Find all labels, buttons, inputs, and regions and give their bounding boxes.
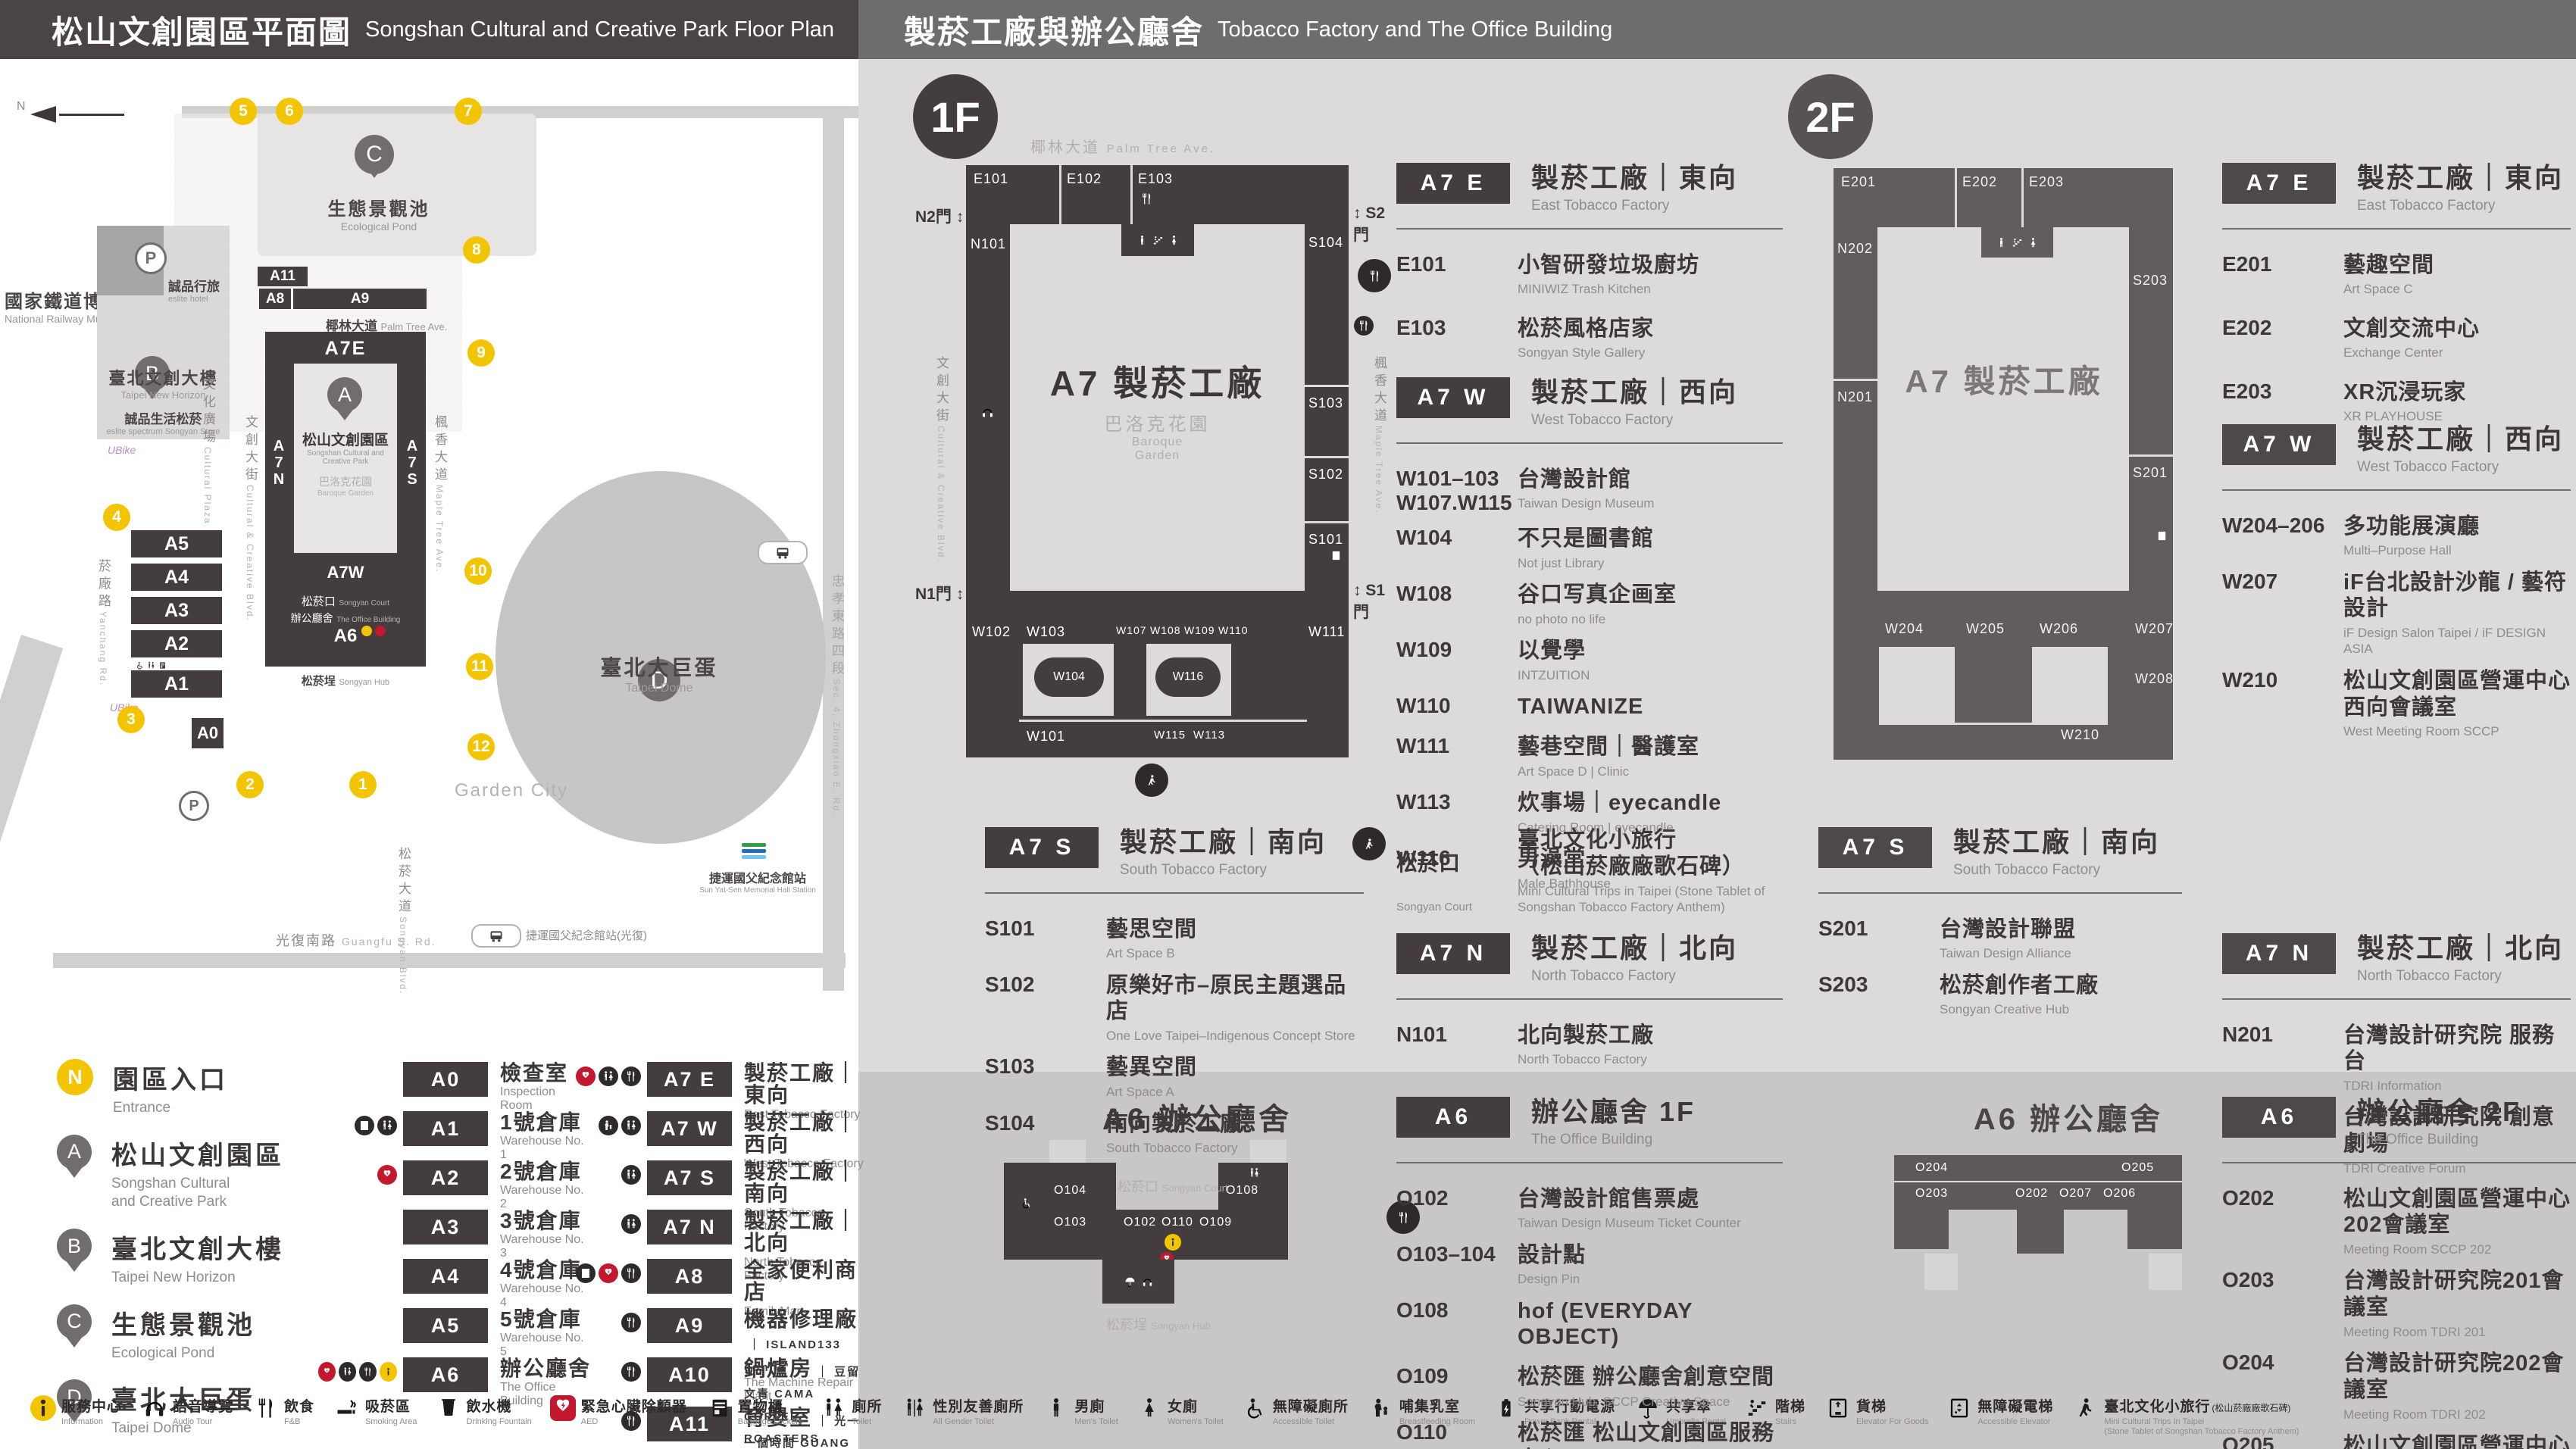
amenity-item: 貨梯Elevator For Goods bbox=[1825, 1395, 1928, 1427]
list-item: E203 XR沉浸玩家XR PLAYHOUSE bbox=[2222, 379, 2571, 425]
place-en: Songshan Cultural and Creative Park bbox=[111, 1175, 284, 1212]
list-item: W108 谷口写真企画室no photo no life bbox=[1396, 582, 1783, 627]
room-name-zh: 以覺學 bbox=[1518, 638, 1590, 664]
building-icons bbox=[562, 1062, 641, 1086]
room-name-en: Art Space C bbox=[2343, 281, 2434, 297]
office-en: The Office Building bbox=[336, 616, 400, 624]
entrance-legend-icon: N bbox=[57, 1059, 93, 1095]
section-title-zh: 製菸工廠｜西向 bbox=[2357, 424, 2564, 454]
pond-pin: C bbox=[355, 135, 394, 174]
amenity-icon bbox=[821, 1395, 846, 1425]
room-name-en: Meeting Room TDRI 202 bbox=[2343, 1407, 2576, 1422]
amenity-zh: 無障礙電梯 bbox=[1977, 1399, 2053, 1415]
entrance-12-num: 12 bbox=[472, 738, 489, 756]
room-w116: W116 bbox=[1173, 670, 1204, 684]
room-o104: O104 bbox=[1054, 1184, 1086, 1198]
f1-road-right-en: Maple Tree Ave. bbox=[1374, 426, 1384, 514]
amenity-zh: 服務中心 bbox=[61, 1399, 122, 1415]
building-icons bbox=[318, 1259, 397, 1263]
room-name-zh: 松菸匯 松山文創園區服務中心 bbox=[1518, 1420, 1783, 1449]
section-badge: A7 W bbox=[1396, 377, 1510, 418]
section-badge: A6 bbox=[2222, 1097, 2336, 1138]
list-item: O109 松菸匯 辦公廳舍創意空間Songyan Hub, SCCP Creat… bbox=[1396, 1364, 1783, 1410]
plaza-en: Cultural Plaza bbox=[202, 447, 213, 525]
f2-west-wing: W204 W205 W206 W207 W208 W210 bbox=[1834, 612, 2173, 760]
place-pin-icon: B bbox=[57, 1229, 92, 1263]
room-o110: O110 bbox=[1161, 1216, 1193, 1229]
north-arrow-icon: N bbox=[30, 106, 124, 123]
building-a2: A2 bbox=[131, 630, 222, 657]
baroque-en: Baroque Garden bbox=[265, 489, 426, 498]
park-zh: 松山文創園區 bbox=[265, 429, 426, 449]
room-name-en: Art Space D | Clinic bbox=[1518, 764, 1699, 779]
f1-west-wing: W102 W103 W107 W108 W109 W110 W111 W104 … bbox=[966, 614, 1349, 757]
room-w110: W110 bbox=[1218, 624, 1249, 636]
room-n101: N101 bbox=[971, 236, 1006, 252]
section-title-en: North Tobacco Factory bbox=[1531, 968, 1738, 985]
audio-icon bbox=[1142, 1276, 1153, 1288]
amenity-en: Accessible Elevator bbox=[1977, 1417, 2055, 1427]
list-item: E202 文創交流中心Exchange Center bbox=[2222, 316, 2571, 361]
gate-n1: N1門 ↕ bbox=[915, 582, 964, 604]
bus-stop-icon-2 bbox=[758, 541, 808, 564]
f2-north-wing: N202 N201 bbox=[1834, 227, 1877, 591]
amenity-zh: 飲水機 bbox=[467, 1399, 512, 1415]
place-pin-letter: A bbox=[67, 1140, 81, 1163]
f1-garden-en: Baroque Garden bbox=[1015, 436, 1299, 463]
room-w206: W206 bbox=[2040, 621, 2078, 637]
room-name-en: Multi–Purpose Hall bbox=[2343, 542, 2480, 558]
list-item: O204 台灣設計研究院202會議室Meeting Room TDRI 202 bbox=[2222, 1351, 2576, 1422]
room-code: E101 bbox=[1396, 252, 1518, 298]
maple-ave-label: 楓香大道Maple Tree Ave. bbox=[430, 415, 449, 573]
eslite-hotel-label: 誠品行旅 eslite hotel bbox=[168, 276, 220, 304]
room-o204: O204 bbox=[1915, 1161, 1948, 1175]
amenity-item: 置物櫃Baggage Lockers bbox=[707, 1395, 803, 1427]
legend-building-row: A6 辦公廳舍The Office Building bbox=[318, 1357, 591, 1397]
room-name-en: Meeting Room TDRI 201 bbox=[2343, 1324, 2576, 1340]
a6-court-zh: 松菸口 bbox=[1118, 1179, 1158, 1194]
section-badge: A6 bbox=[1396, 1097, 1510, 1138]
a1-label: A1 bbox=[164, 673, 189, 695]
amenity-en: AED bbox=[581, 1417, 689, 1427]
room-name-zh: 谷口写真企画室 bbox=[1518, 582, 1677, 608]
room-name-en: no photo no life bbox=[1518, 611, 1677, 627]
guangfu-zh: 光復南路 bbox=[276, 933, 336, 948]
a6-2f-main-bar: O204 O205 O203 O202 O207 O206 bbox=[1894, 1155, 2182, 1210]
building-badge: A6 bbox=[403, 1357, 488, 1392]
room-e101: E101 bbox=[974, 171, 1008, 187]
women-icon bbox=[2027, 237, 2039, 248]
park-map: N 國家鐵道博物館 National Railway Museum C 生態景觀… bbox=[0, 59, 858, 1053]
room-name-zh: 設計點 bbox=[1518, 1242, 1586, 1269]
room-name-zh: iF台北設計沙龍 / 藝符設計 bbox=[2343, 570, 2571, 623]
a6-2f-right-wing bbox=[2127, 1210, 2182, 1249]
amenity-icon bbox=[1242, 1395, 1268, 1425]
info-icon bbox=[1165, 1234, 1181, 1251]
a6-2f-title: A6 辦公廳舍 bbox=[1932, 1095, 2205, 1138]
a6-letter: A6 bbox=[334, 626, 358, 646]
section-a7e-1f: A7 E 製菸工廠｜東向East Tobacco Factory E101 小智… bbox=[1396, 163, 1783, 379]
cc-blvd-label: 文創大街Cultural & Creative Blvd. bbox=[241, 415, 260, 622]
a9-label: A9 bbox=[351, 291, 369, 308]
f2-court-right bbox=[2032, 647, 2108, 723]
room-w101: W101 bbox=[1027, 729, 1065, 745]
room-code: O110 bbox=[1396, 1420, 1518, 1449]
room-code: O108 bbox=[1396, 1298, 1518, 1354]
zhongxiao-label: 忠孝東路四段Sec. 4, Zhongxiao E. Rd. bbox=[827, 574, 846, 816]
building-zh: 製菸工廠｜北向 bbox=[744, 1209, 858, 1254]
amenity-icon bbox=[334, 1395, 360, 1425]
room-name-en: Not just Library bbox=[1518, 555, 1654, 571]
legend-buildings-right: A7 E 製菸工廠｜東向East Tobacco Factory A7 W 製菸… bbox=[562, 1062, 865, 1449]
room-code: O102 bbox=[1396, 1186, 1518, 1232]
building-zh: 製菸工廠｜南向 bbox=[744, 1160, 858, 1205]
entrance-zh: 園區入口 bbox=[113, 1059, 228, 1096]
amenity-item: 無障礙電梯Accessible Elevator bbox=[1946, 1395, 2055, 1427]
pond-pin-letter: C bbox=[366, 142, 383, 167]
room-name-zh: 北向製菸工廠 bbox=[1518, 1023, 1654, 1049]
f1-mid-corridor bbox=[966, 591, 1349, 614]
parking-letter-2: P bbox=[189, 798, 199, 815]
entrance-7-num: 7 bbox=[464, 102, 473, 120]
room-code: W111 bbox=[1396, 734, 1518, 779]
entrance-6-num: 6 bbox=[285, 102, 294, 120]
room-code: W210 bbox=[2222, 668, 2343, 740]
a6-hub-en: Songyan Hub bbox=[1151, 1320, 1211, 1332]
section-title-en: The Office Building bbox=[2357, 1132, 2521, 1148]
room-code: S203 bbox=[1818, 973, 1940, 1018]
section-title-en: West Tobacco Factory bbox=[1531, 412, 1738, 429]
room-name-en: MINIWIZ Trash Kitchen bbox=[1518, 281, 1699, 297]
section-title-zh: 辦公廳舍 1F bbox=[1531, 1097, 1696, 1127]
section-title-en: South Tobacco Factory bbox=[1120, 862, 1327, 879]
room-name-en: North Tobacco Factory bbox=[1518, 1051, 1654, 1067]
room-name-zh: 台灣設計研究院201會議室 bbox=[2343, 1268, 2576, 1321]
room-name-zh: 藝異空間 bbox=[1106, 1054, 1197, 1081]
building-badge: A1 bbox=[403, 1111, 488, 1146]
gate-s2: ↕ S2門 bbox=[1353, 205, 1386, 245]
floor-plan-poster: 松山文創園區平面圖 Songshan Cultural and Creative… bbox=[0, 0, 2576, 1449]
amenity-en: Smoking Area bbox=[365, 1417, 417, 1427]
a6-1f-left-wing: O104 bbox=[1048, 1163, 1116, 1210]
toilet-icon bbox=[147, 661, 155, 670]
entrance-9: 9 bbox=[467, 339, 495, 367]
place-pin-icon: C bbox=[57, 1304, 92, 1339]
office-zh: 辦公廳舍 bbox=[291, 612, 333, 624]
list-item: S101 藝思空間Art Space B bbox=[985, 917, 1364, 962]
list-item: W109 以覺學INTZUITION bbox=[1396, 638, 1783, 683]
building-badge: A7 N bbox=[647, 1210, 732, 1244]
a6-2f-slot-left bbox=[1924, 1254, 1958, 1290]
building-badge: A3 bbox=[403, 1210, 488, 1244]
list-item: O202 松山文創園區營運中心202會議室Meeting Room SCCP 2… bbox=[2222, 1186, 2576, 1258]
amenity-item: 吸菸區Smoking Area bbox=[334, 1395, 417, 1427]
room-s201: S201 bbox=[2133, 465, 2168, 481]
baroque-zh: 巴洛克花園 bbox=[265, 474, 426, 489]
room-o109: O109 bbox=[1199, 1216, 1232, 1229]
court-en: Songyan Court bbox=[339, 599, 389, 607]
amenity-en: Information bbox=[61, 1417, 123, 1427]
section-badge: A7 N bbox=[1396, 933, 1510, 974]
section-a7w-2f: A7 W 製菸工廠｜西向West Tobacco Factory W204–20… bbox=[2222, 424, 2571, 751]
building-icons bbox=[562, 1259, 641, 1283]
room-code: O202 bbox=[2222, 1186, 2343, 1258]
a6-hub-label: 松菸埕 Songyan Hub bbox=[1106, 1314, 1211, 1334]
office-map-label: 辦公廳舍 The Office Building bbox=[265, 611, 426, 626]
building-badge: A4 bbox=[403, 1259, 488, 1294]
f1-center-title: A7 製菸工廠 bbox=[1015, 356, 1299, 406]
court-zh: 松菸口 bbox=[302, 595, 336, 608]
room-code: O103–104 bbox=[1396, 1242, 1518, 1288]
list-item: E101 小智研發垃圾廚坊MINIWIZ Trash Kitchen bbox=[1396, 252, 1783, 298]
section-a7n-1f: A7 N 製菸工廠｜北向North Tobacco Factory N101 北… bbox=[1396, 933, 1783, 1086]
building-a0: A0 bbox=[192, 718, 224, 748]
left-header: 松山文創園區平面圖 Songshan Cultural and Creative… bbox=[0, 0, 858, 59]
eslite-hotel-zh: 誠品行旅 bbox=[168, 276, 220, 295]
entrance-3-num: 3 bbox=[127, 710, 136, 729]
guangfu-en: Guangfu S. Rd. bbox=[342, 935, 436, 948]
right-header: 製菸工廠與辦公廳舍 Tobacco Factory and The Office… bbox=[858, 0, 2576, 59]
section-badge: A7 E bbox=[2222, 163, 2336, 204]
amenity-en: Drinking Fountain bbox=[467, 1417, 532, 1427]
parking-letter: P bbox=[145, 248, 157, 268]
room-e103: E103 bbox=[1138, 171, 1173, 187]
pond-zh: 生態景觀池 bbox=[318, 194, 439, 220]
room-w109: W109 bbox=[1184, 624, 1215, 636]
room-o108: O108 bbox=[1226, 1184, 1258, 1198]
list-item: S203 松菸創作者工廠Songyan Creative Hub bbox=[1818, 973, 2182, 1018]
parking-icon: P bbox=[135, 242, 167, 274]
building-badge: A9 bbox=[647, 1308, 732, 1343]
list-item: E201 藝趣空間Art Space C bbox=[2222, 252, 2571, 298]
tobacco-factory-complex: A7E A 7 N A 7 S A 松山文創園區 Songshan Cultur… bbox=[265, 332, 426, 667]
f1-road-left-zh: 文創大街 bbox=[934, 356, 949, 426]
a6-1f-right-wing: O108 bbox=[1218, 1163, 1288, 1210]
audio-icon bbox=[981, 406, 994, 419]
hub-zh: 松菸埕 bbox=[302, 675, 336, 688]
amenity-zh: 貨梯 bbox=[1856, 1399, 1887, 1415]
entrance-en: Entrance bbox=[113, 1099, 228, 1118]
bus-icon bbox=[775, 545, 790, 561]
building-icons bbox=[318, 1210, 397, 1214]
a6-2f-slot-right bbox=[2149, 1254, 2182, 1290]
amenity-zh: 置物櫃 bbox=[738, 1399, 783, 1415]
park-pin: A bbox=[327, 377, 362, 412]
room-w104: W104 bbox=[1053, 670, 1085, 684]
section-a6-2f: A6 辦公廳舍 2FThe Office Building O202 松山文創園… bbox=[2222, 1097, 2576, 1449]
room-code: N101 bbox=[1396, 1023, 1518, 1068]
entrance-badge: N bbox=[67, 1066, 83, 1089]
palm-ave-en: Palm Tree Ave. bbox=[380, 321, 447, 333]
a6-south-tab bbox=[330, 650, 361, 667]
walker-icon bbox=[1363, 838, 1376, 851]
garden-city-label: Garden City bbox=[455, 780, 568, 801]
zhongxiao-zh: 忠孝東路四段 bbox=[830, 574, 844, 679]
amenity-item: 服務中心Information bbox=[30, 1395, 123, 1427]
building-zh: 機器修理廠 bbox=[744, 1307, 858, 1331]
a7e-map-label: A7E bbox=[265, 338, 426, 360]
legend-place-row: C 生態景觀池Ecological Pond bbox=[57, 1304, 314, 1363]
f1-road-left-en: Cultural & Creative Blvd. bbox=[936, 426, 946, 563]
a2-label: A2 bbox=[164, 633, 189, 655]
room-code: S102 bbox=[985, 973, 1106, 1045]
room-name-zh: 松山文創園區營運中心 西向會議室 bbox=[2343, 668, 2571, 721]
section-title-zh: 製菸工廠｜東向 bbox=[1531, 163, 1738, 193]
room-w208: W208 bbox=[2135, 671, 2174, 687]
court-code-zh: 松菸口 bbox=[1396, 851, 1518, 876]
road-civic-blvd bbox=[0, 635, 63, 1052]
road-guangfu bbox=[53, 953, 846, 968]
locker-icon bbox=[2156, 530, 2168, 542]
maple-zh: 楓香大道 bbox=[433, 415, 447, 485]
room-name-en: West Meeting Room SCCP bbox=[2343, 723, 2571, 739]
legend-building-row: A7 E 製菸工廠｜東向East Tobacco Factory bbox=[562, 1062, 865, 1101]
amenity-item: 無障礙廁所Accessible Toilet bbox=[1242, 1395, 1350, 1427]
room-code: W108 bbox=[1396, 582, 1518, 627]
a6-1f-map: A6 辦公廳舍 O104 O108 松菸口 Songyan Court O103… bbox=[977, 1079, 1417, 1352]
room-w102: W102 bbox=[972, 624, 1011, 640]
entrance-12: 12 bbox=[467, 733, 495, 760]
gate-s1-label: S1門 bbox=[1353, 582, 1385, 621]
dome-zh: 臺北大巨蛋 bbox=[583, 651, 735, 682]
room-o205: O205 bbox=[2121, 1161, 2154, 1175]
room-name-en: INTZUITION bbox=[1518, 667, 1590, 683]
entrance-4: 4 bbox=[103, 504, 130, 531]
room-w107: W107 bbox=[1116, 624, 1147, 636]
room-w113: W113 bbox=[1193, 729, 1225, 742]
north-label: N bbox=[17, 100, 26, 114]
legend-building-row: A7 S 製菸工廠｜南向South Tobacco Factory bbox=[562, 1160, 865, 1200]
legend-places: N 園區入口Entrance A 松山文創園區Songshan Cultural… bbox=[57, 1059, 314, 1449]
section-badge: A7 E bbox=[1396, 163, 1510, 204]
room-name-zh: XR沉浸玩家 bbox=[2343, 379, 2466, 406]
legend-buildings-left: A0 檢查室Inspection Room A1 1號倉庫Warehouse N… bbox=[318, 1062, 591, 1407]
legend-place-row: A 松山文創園區Songshan Cultural and Creative P… bbox=[57, 1135, 314, 1212]
a1-icon-strip bbox=[131, 660, 222, 670]
building-badge: A7 W bbox=[647, 1111, 732, 1146]
amenity-icon bbox=[142, 1395, 167, 1425]
mrt-station-label: 捷運國父紀念館站 Sun Yat-Sen Memorial Hall Stati… bbox=[667, 868, 849, 895]
amenity-zh: 廁所 bbox=[852, 1399, 882, 1415]
amenity-icon bbox=[30, 1395, 56, 1425]
zhongxiao-en: Sec. 4, Zhongxiao E. Rd. bbox=[831, 679, 842, 816]
amenity-icon bbox=[550, 1395, 576, 1425]
f2-north-toilets bbox=[1981, 227, 2053, 258]
baroque-label: 巴洛克花園 Baroque Garden bbox=[265, 474, 426, 498]
room-w204: W204 bbox=[1885, 621, 1924, 637]
building-badge: A5 bbox=[403, 1308, 488, 1343]
mrt-en: Sun Yat-Sen Memorial Hall Station bbox=[667, 886, 849, 895]
legend-place-row: B 臺北文創大樓Taipei New Horizon bbox=[57, 1229, 314, 1288]
section-title-zh: 製菸工廠｜北向 bbox=[1531, 933, 1738, 963]
room-code: W101–103 W107.W115 bbox=[1396, 467, 1518, 515]
room-name-zh: 松山文創園區營運中心201會議室 bbox=[2343, 1433, 2576, 1449]
room-name-en: TDRI Information bbox=[2343, 1078, 2571, 1094]
amenity-item: 飲水機Drinking Fountain bbox=[436, 1395, 532, 1427]
entrance-8-num: 8 bbox=[472, 241, 481, 259]
room-w104-oval: W104 bbox=[1034, 657, 1104, 697]
section-a7e-2f: A7 E 製菸工廠｜東向East Tobacco Factory E201 藝趣… bbox=[2222, 163, 2571, 443]
room-o202: O202 bbox=[2015, 1187, 2048, 1201]
building-icons bbox=[318, 1308, 397, 1313]
section-title-en: The Office Building bbox=[1531, 1132, 1696, 1148]
a7w-oval: A7W bbox=[308, 559, 383, 586]
a6-map-label: A6 bbox=[265, 626, 426, 647]
room-name-zh: 多功能展演廳 bbox=[2343, 514, 2480, 540]
legend-building-row: A5 5號倉庫Warehouse No. 5 bbox=[318, 1308, 591, 1348]
room-o207: O207 bbox=[2059, 1187, 2092, 1201]
room-code: E202 bbox=[2222, 316, 2343, 361]
room-code: E203 bbox=[2222, 379, 2343, 425]
room-w116-oval: W116 bbox=[1155, 657, 1221, 697]
room-w111: W111 bbox=[1308, 624, 1345, 640]
bus-stop-label: 捷運國父紀念館站(光復) bbox=[526, 927, 647, 943]
building-a5: A5 bbox=[131, 530, 222, 557]
room-name-zh: 台灣設計館 bbox=[1518, 467, 1654, 493]
legend-building-row: A7 W 製菸工廠｜西向West Tobacco Factory bbox=[562, 1111, 865, 1151]
section-title-en: South Tobacco Factory bbox=[1953, 862, 2160, 879]
section-title-en: West Tobacco Factory bbox=[2357, 459, 2564, 476]
amenity-en: Accessible Toilet bbox=[1273, 1417, 1350, 1427]
bus-stop-icon bbox=[471, 924, 521, 948]
amenity-item: 性別友善廁所All Gender Toilet bbox=[902, 1395, 1025, 1427]
yanchang-en: Yanchang Rd. bbox=[98, 611, 108, 686]
room-name-zh: 台灣設計研究院 服務台 bbox=[2343, 1023, 2571, 1076]
entrance-2-num: 2 bbox=[245, 776, 255, 794]
a6-2f-left-wing bbox=[1894, 1210, 1949, 1249]
building-zh: 製菸工廠｜東向 bbox=[744, 1061, 858, 1107]
park-en: Songshan Cultural and Creative Park bbox=[265, 449, 426, 466]
entrance-5-num: 5 bbox=[239, 102, 248, 120]
a6-1f-south-tab bbox=[1102, 1260, 1174, 1304]
amenity-en: Elevator For Goods bbox=[1856, 1417, 1928, 1427]
room-e202: E202 bbox=[1962, 174, 1997, 190]
building-zh: 鍋爐房 bbox=[744, 1357, 812, 1380]
room-name-zh: 藝趣空間 bbox=[2343, 252, 2434, 279]
women-icon bbox=[1168, 235, 1180, 246]
list-item: O102 台灣設計館售票處Taiwan Design Museum Ticket… bbox=[1396, 1186, 1783, 1232]
entrance-11-num: 11 bbox=[471, 657, 488, 676]
a4-label: A4 bbox=[164, 567, 189, 589]
plaza-zh: 文化廣場 bbox=[201, 377, 215, 447]
a8-label: A8 bbox=[266, 291, 284, 308]
amenity-en: All Gender Toilet bbox=[933, 1417, 1025, 1427]
room-name-zh: hof (EVERYDAY OBJECT) bbox=[1518, 1298, 1783, 1351]
amenity-icon bbox=[707, 1395, 733, 1425]
amenity-icon bbox=[1043, 1395, 1069, 1425]
metro-logo bbox=[739, 838, 769, 863]
amenity-item: 女廁Women's Toilet bbox=[1136, 1395, 1224, 1427]
section-badge: A7 N bbox=[2222, 933, 2336, 974]
songyan-blvd-zh: 松菸大道 bbox=[396, 847, 411, 917]
room-name-en: Taiwan Design Alliance bbox=[1940, 945, 2076, 961]
room-name-en: Meeting Room SCCP 202 bbox=[2343, 1241, 2576, 1257]
room-o102: O102 bbox=[1124, 1216, 1156, 1229]
entrance-10: 10 bbox=[464, 557, 492, 585]
section-badge: A7 S bbox=[1818, 827, 1932, 868]
f2-center-title: A7 製菸工廠 bbox=[1887, 356, 2121, 402]
room-s103: S103 bbox=[1308, 395, 1343, 411]
place-zh: 生態景觀池 bbox=[111, 1304, 255, 1341]
section-badge: A7 S bbox=[985, 827, 1099, 868]
room-name-en: Taiwan Design Museum bbox=[1518, 495, 1654, 511]
a6-1f-main-bar: O103 O102 O110 O109 bbox=[1004, 1210, 1288, 1260]
locker-icon bbox=[1330, 550, 1342, 561]
f1-east-wing: E101 E102 E103 bbox=[966, 165, 1349, 224]
building-icons bbox=[562, 1160, 641, 1185]
room-e203: E203 bbox=[2029, 174, 2064, 190]
